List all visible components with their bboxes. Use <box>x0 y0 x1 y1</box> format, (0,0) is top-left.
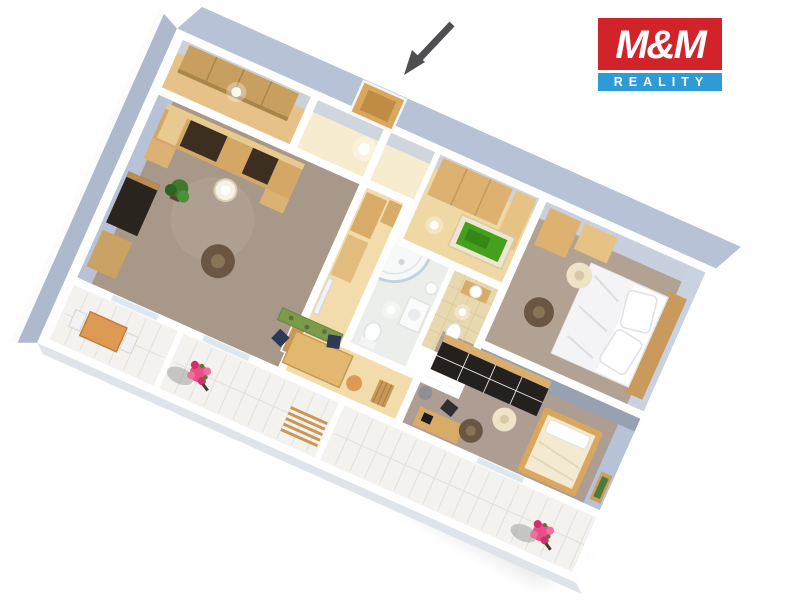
mm-reality-logo: M&M REALITY <box>598 18 722 91</box>
listing-render: M&M REALITY <box>0 0 800 600</box>
logo-mm: M&M <box>598 18 722 70</box>
entrance-arrow <box>404 24 452 75</box>
navy-chair <box>326 334 341 349</box>
logo-reality: REALITY <box>598 73 722 91</box>
